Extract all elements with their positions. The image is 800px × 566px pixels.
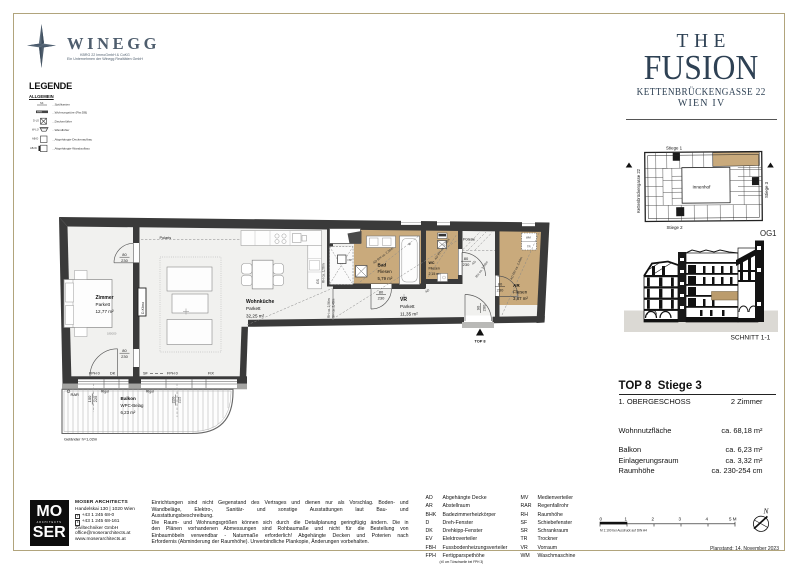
svg-text:SCHNITT 1-1: SCHNITT 1-1 [731,335,771,342]
svg-text:5 M: 5 M [729,517,737,522]
svg-text:Rigol: Rigol [146,390,154,394]
svg-text:32,25 m²: 32,25 m² [246,314,265,319]
svg-text:FPH 0: FPH 0 [167,372,178,376]
svg-text:230: 230 [463,262,470,267]
svg-text:220: 220 [170,396,175,403]
svg-text:200: 200 [482,304,487,311]
svg-text:RH ca. 2,56m: RH ca. 2,56m [322,263,326,283]
svg-text:Balkon: Balkon [121,396,137,401]
svg-text:Stiege 1: Stiege 1 [666,146,683,151]
svg-text:Wohnküche: Wohnküche [246,299,274,305]
svg-text:12,77 m²: 12,77 m² [96,309,115,314]
svg-text:TOP 8: TOP 8 [474,339,486,344]
svg-text:RAR: RAR [71,392,80,397]
svg-text:Parkett: Parkett [96,302,111,307]
svg-text:1: 1 [625,517,628,522]
svg-text:Parkett: Parkett [400,304,415,309]
svg-text:230: 230 [121,354,128,359]
svg-text:Fliesen: Fliesen [513,290,528,295]
svg-text:225: 225 [93,395,98,402]
svg-text:GS: GS [316,278,320,284]
svg-text:90: 90 [475,305,480,310]
svg-text:230: 230 [378,296,385,301]
svg-text:WM: WM [526,236,532,240]
svg-text:100: 100 [87,395,92,402]
svg-text:5,79 m²: 5,79 m² [378,276,393,281]
svg-text:Rigol: Rigol [101,390,109,394]
svg-text:D-Klima: D-Klima [141,302,145,314]
svg-text:WPC-Belag: WPC-Belag [121,403,144,408]
svg-text:2,15 m²: 2,15 m² [429,272,442,276]
svg-text:Geländer h=1,02m: Geländer h=1,02m [64,437,98,442]
svg-text:Stiege 3: Stiege 3 [764,181,769,198]
svg-text:80: 80 [122,348,127,353]
svg-text:Parkett: Parkett [246,306,261,311]
svg-text:SF: SF [143,372,149,376]
svg-text:80: 80 [379,289,384,294]
svg-text:Zimmer: Zimmer [96,295,114,301]
svg-text:Poterie: Poterie [463,238,475,242]
svg-text:180/200: 180/200 [107,332,117,336]
svg-text:3,87 m²: 3,87 m² [513,296,528,301]
svg-text:VR: VR [400,297,407,303]
svg-text:TR: TR [527,245,531,249]
svg-text:11,35 m²: 11,35 m² [400,312,418,317]
svg-text:Bad: Bad [378,263,387,268]
svg-text:M 1:100 bei Ausdruck auf DIN A: M 1:100 bei Ausdruck auf DIN A4 [600,529,647,533]
svg-text:225: 225 [177,396,182,403]
svg-text:Fliesen: Fliesen [429,267,440,271]
svg-text:80: 80 [122,252,127,257]
svg-text:AR: AR [513,283,520,288]
svg-text:N: N [763,507,770,516]
svg-text:80: 80 [464,256,469,261]
svg-text:FIX: FIX [208,372,214,376]
svg-text:FBH: FBH [348,259,353,262]
svg-text:4: 4 [706,517,709,522]
svg-text:3: 3 [679,517,682,522]
svg-text:6,23 m²: 6,23 m² [121,410,136,415]
svg-text:Innenhof: Innenhof [693,185,712,190]
svg-text:WC: WC [429,261,435,265]
svg-text:RH ca. 2,56m: RH ca. 2,56m [327,298,331,318]
svg-text:230: 230 [121,258,128,263]
svg-text:Polaris: Polaris [160,236,172,240]
svg-text:FPH 0: FPH 0 [89,372,100,376]
svg-text:2: 2 [652,517,655,522]
svg-text:80: 80 [498,281,503,286]
svg-text:Stiege 2: Stiege 2 [667,225,684,230]
svg-text:230: 230 [497,288,504,293]
svg-text:Fliesen: Fliesen [378,269,393,274]
svg-text:0: 0 [600,517,603,522]
svg-text:SH ca. 2,40m: SH ca. 2,40m [332,298,336,318]
svg-text:DK: DK [110,372,116,376]
svg-text:Kettenbrückengasse 22: Kettenbrückengasse 22 [636,168,641,213]
